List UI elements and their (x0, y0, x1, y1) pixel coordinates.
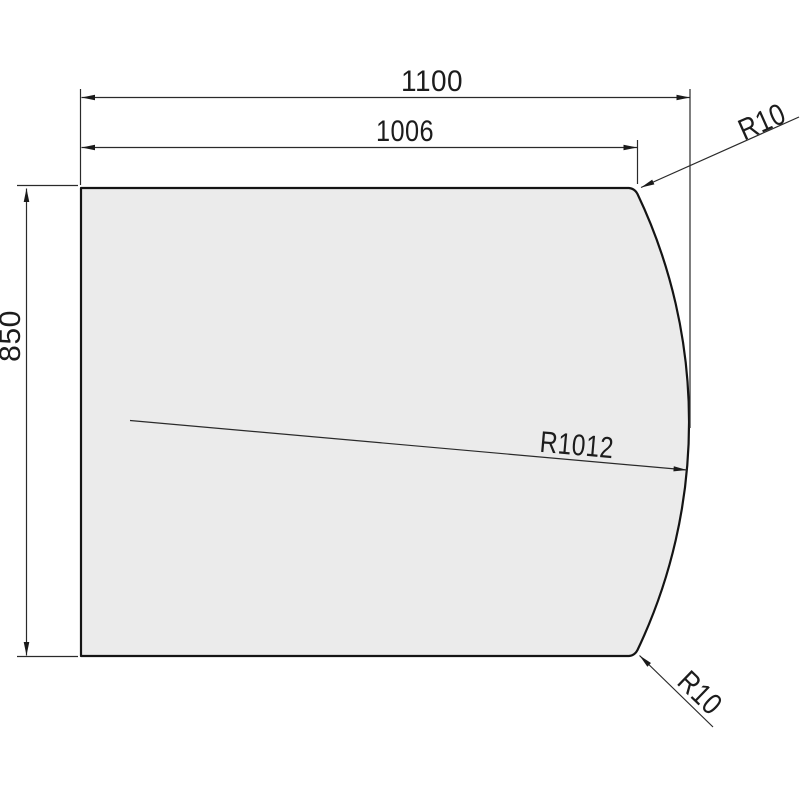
height-value: 850 (0, 310, 27, 362)
overall-width-value: 1100 (401, 65, 463, 98)
panel-outline (81, 188, 689, 656)
flat-edge-width-value: 1006 (376, 115, 434, 148)
technical-drawing-page: 1100 1006 850 R10 R10 (0, 0, 800, 800)
technical-drawing-canvas: 1100 1006 850 R10 R10 (0, 0, 800, 800)
front-edge-radius-value: R1012 (539, 426, 616, 465)
